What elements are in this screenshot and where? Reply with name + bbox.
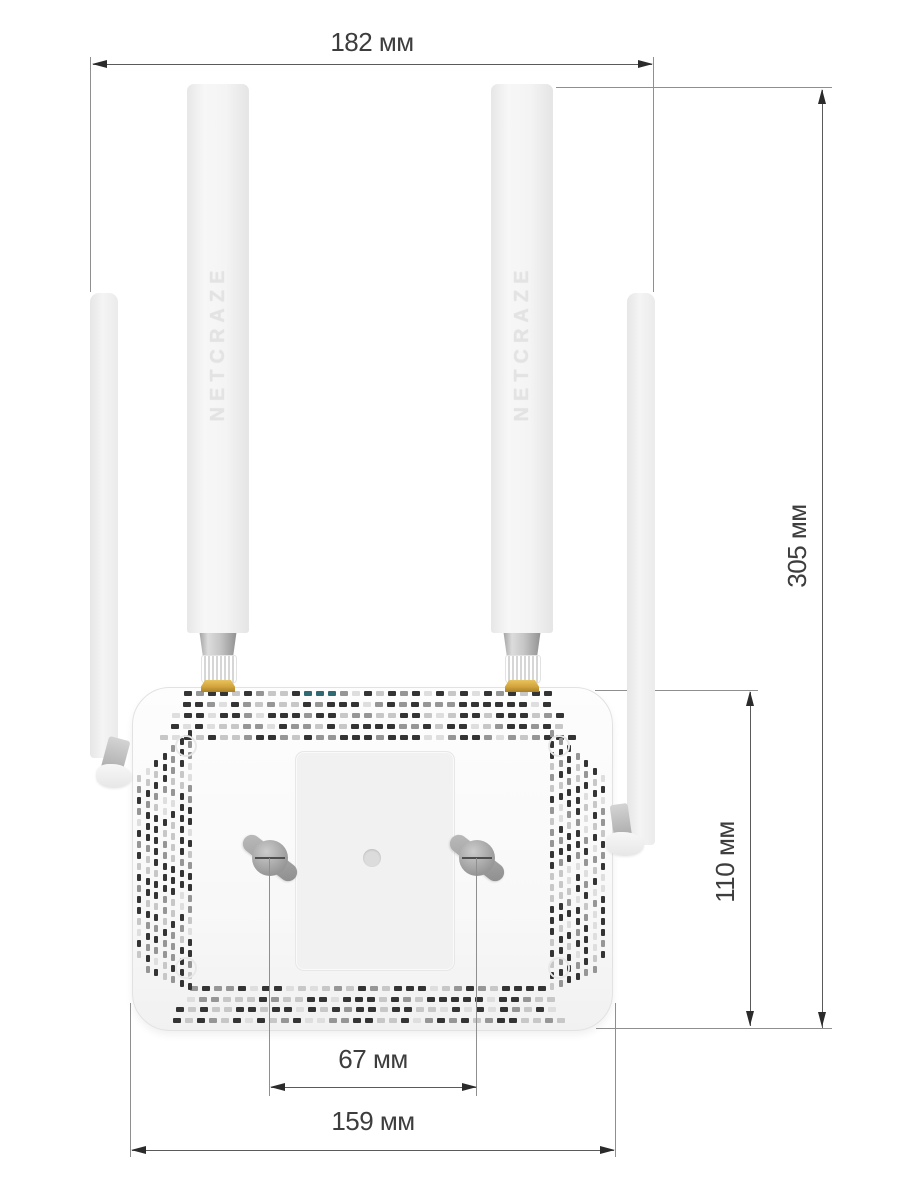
vent-dash [451,997,459,1002]
vent-dash [601,819,605,826]
vent-dash [154,837,158,844]
dim-overall-width-label: 182 мм [287,27,457,57]
vent-dash [305,1018,313,1023]
vent-dash [291,724,299,729]
vent-dash [379,997,387,1002]
vent-dash [508,735,516,740]
vent-dash [146,955,150,962]
vent-dash [146,944,150,951]
vent-dash [327,724,335,729]
vent-dash [224,1007,232,1012]
vent-dash [171,778,175,785]
vent-dash [568,735,576,740]
vent-dash [584,859,588,866]
vent-dash [567,767,571,774]
corner-screw-hole-bottom-left [175,957,197,979]
vent-dash [559,837,563,844]
vent-column [171,745,175,988]
vent-dash [472,713,480,718]
vent-dash [601,929,605,936]
vent-dash [329,1018,337,1023]
vent-dash [576,885,580,892]
vent-dash [584,903,588,910]
vent-dash [343,997,351,1002]
vent-dash [137,863,141,870]
vent-dash [180,848,184,855]
vent-dash [137,841,141,848]
vent-dash [358,986,366,991]
vent-dash [260,1007,268,1012]
vent-dash [428,1007,436,1012]
vent-dash [435,702,443,707]
vent-dash [550,807,554,814]
vent-dash [235,997,243,1002]
vent-dash [584,936,588,943]
vent-dash [310,986,318,991]
vent-dash [576,753,580,760]
vent-dash [209,1018,217,1023]
vent-dash [364,691,372,696]
dim-body-height-arrow-top [746,691,754,706]
vent-dash [188,983,192,990]
vent-dash [146,834,150,841]
vent-dash [180,903,184,910]
vent-dash [567,899,571,906]
vent-dash [202,986,210,991]
vent-dash [188,774,192,781]
vent-dash [550,829,554,836]
vent-dash [250,986,258,991]
vent-column [576,753,580,984]
vent-dash [233,1018,241,1023]
vent-dash [464,1007,472,1012]
vent-dash [425,1018,433,1023]
vent-dash [567,954,571,961]
vent-dash [154,969,158,976]
vent-dash [584,782,588,789]
vent-dash [550,785,554,792]
vent-dash [208,735,216,740]
vent-dash [163,929,167,936]
vent-dash [544,713,552,718]
dim-overall-width-ext-right [653,57,654,292]
vent-dash [180,760,184,767]
vent-dash [171,811,175,818]
vent-row [173,1018,571,1023]
vent-dash [332,1007,340,1012]
vent-dash [584,815,588,822]
vent-dash [146,823,150,830]
vent-dash [567,756,571,763]
vent-dash [496,691,504,696]
vent-dash [274,986,282,991]
front-right-antenna-brand: NETCRAZE [510,223,534,463]
vent-dash [340,713,348,718]
vent-dash [163,797,167,804]
vent-dash [601,918,605,925]
vent-dash [576,929,580,936]
vent-dash [387,724,395,729]
vent-dash [550,873,554,880]
front-left-antenna-brand: NETCRAZE [206,223,230,463]
vent-dash [163,786,167,793]
vent-dash [601,775,605,782]
vent-dash [208,713,216,718]
vent-dash [415,997,423,1002]
vent-dash [284,1007,292,1012]
vent-dash [555,724,563,729]
vent-dash [137,929,141,936]
vent-dash [304,691,312,696]
vent-dash [388,691,396,696]
vent-dash [593,922,597,929]
mount-keyhole-crosshair [462,857,492,859]
front-right-antenna-connector-collar [505,655,541,684]
vent-dash [400,713,408,718]
vent-dash [524,1007,532,1012]
vent-dash [601,907,605,914]
vent-dash [519,724,527,729]
vent-dash [154,848,158,855]
vent-dash [154,914,158,921]
vent-dash [355,997,363,1002]
vent-dash [521,1018,529,1023]
vent-dash [370,986,378,991]
vent-dash [593,900,597,907]
vent-dash [188,785,192,792]
vent-dash [256,691,264,696]
vent-dash [593,867,597,874]
vent-dash [461,1018,469,1023]
vent-dash [146,801,150,808]
vent-dash [567,943,571,950]
vent-dash [171,855,175,862]
vent-dash [188,884,192,891]
vent-dash [154,782,158,789]
vent-dash [188,829,192,836]
vent-dash [339,702,347,707]
vent-dash [576,830,580,837]
mount-keyhole-right [445,826,509,890]
vent-dash [315,724,323,729]
vent-dash [430,986,438,991]
vent-dash [404,1007,412,1012]
vent-dash [163,896,167,903]
vent-dash [550,818,554,825]
vent-dash [244,735,252,740]
vent-dash [207,724,215,729]
vent-dash [472,735,480,740]
vent-dash [259,997,267,1002]
vent-dash [437,1018,445,1023]
vent-dash [520,735,528,740]
dim-body-width-arrow-right [600,1146,615,1154]
vent-dash [180,837,184,844]
vent-dash [532,713,540,718]
vent-row [190,986,550,991]
vent-dash [137,951,141,958]
vent-dash [163,841,167,848]
dim-overall-width-ext-left [90,57,91,292]
dim-body-width-line [132,1150,614,1151]
vent-dash [377,1018,385,1023]
vent-dash [320,1007,328,1012]
vent-dash [550,796,554,803]
vent-dash [163,973,167,980]
rear-left-antenna [90,293,118,758]
vent-dash [523,997,531,1002]
rear-left-antenna-base [96,764,132,788]
vent-dash [368,1007,376,1012]
vent-dash [576,874,580,881]
vent-dash [593,889,597,896]
vent-dash [231,724,239,729]
dim-mount-spacing-line [271,1087,476,1088]
corner-screw-hole-top-left [175,735,197,757]
vent-dash [243,724,251,729]
vent-dash [559,925,563,932]
dim-body-height-label: 110 мм [710,777,740,947]
vent-dash [576,907,580,914]
vent-dash [593,911,597,918]
vent-dash [188,906,192,913]
vent-column [137,775,141,968]
dim-overall-height-ext-top [556,87,832,88]
vent-dash [463,997,471,1002]
vent-dash [567,976,571,983]
vent-dash [344,1007,352,1012]
vent-dash [180,947,184,954]
vent-dash [497,1018,505,1023]
vent-dash [576,841,580,848]
vent-dash [392,1007,400,1012]
vent-dash [448,735,456,740]
vent-dash [248,1007,256,1012]
vent-dash [601,863,605,870]
vent-dash [188,1007,196,1012]
vent-dash [316,691,324,696]
vent-dash [146,779,150,786]
vent-dash [219,724,227,729]
vent-dash [137,852,141,859]
vent-dash [281,1018,289,1023]
vent-dash [340,735,348,740]
vent-dash [442,986,450,991]
vent-dash [584,892,588,899]
vent-dash [268,691,276,696]
vent-dash [171,844,175,851]
vent-dash [283,997,291,1002]
vent-dash [163,951,167,958]
vent-dash [584,826,588,833]
vent-dash [567,844,571,851]
vent-dash [380,1007,388,1012]
vent-dash [576,863,580,870]
vent-dash [550,939,554,946]
vent-dash [601,797,605,804]
vent-dash [214,986,222,991]
vent-dash [576,973,580,980]
vent-dash [188,807,192,814]
vent-dash [584,870,588,877]
vent-dash [146,900,150,907]
vent-dash [519,702,527,707]
vent-dash [185,1018,193,1023]
vent-dash [146,768,150,775]
vent-dash [221,1018,229,1023]
vent-dash [576,962,580,969]
vent-dash [171,954,175,961]
vent-dash [352,735,360,740]
vent-dash [163,940,167,947]
vent-dash [576,764,580,771]
vent-dash [183,702,191,707]
vent-dash [137,775,141,782]
vent-dash [269,1018,277,1023]
vent-dash [280,713,288,718]
vent-dash [559,848,563,855]
vent-dash [188,840,192,847]
vent-dash [478,986,486,991]
vent-dash [328,713,336,718]
dim-overall-height-line [822,90,823,1028]
vent-dash [163,830,167,837]
vent-dash [593,966,597,973]
vent-dash [460,691,468,696]
vent-dash [593,801,597,808]
vent-dash [180,804,184,811]
vent-dash [322,986,330,991]
vent-dash [576,940,580,947]
vent-column [601,775,605,968]
vent-dash [545,1018,553,1023]
vent-dash [593,834,597,841]
vent-dash [601,852,605,859]
vent-dash [567,800,571,807]
vent-dash [171,767,175,774]
vent-dash [163,874,167,881]
vent-dash [137,830,141,837]
vent-dash [488,1007,496,1012]
vent-dash [535,997,543,1002]
vent-dash [567,811,571,818]
vent-dash [364,735,372,740]
vent-dash [593,790,597,797]
vent-dash [514,986,522,991]
vent-dash [601,940,605,947]
vent-dash [559,881,563,888]
vent-dash [171,756,175,763]
vent-dash [154,903,158,910]
vent-dash [292,713,300,718]
vent-dash [172,713,180,718]
vent-dash [154,771,158,778]
vent-dash [567,789,571,796]
vent-dash [507,702,515,707]
vent-dash [567,932,571,939]
vent-dash [576,852,580,859]
vent-dash [412,735,420,740]
vent-dash [188,950,192,957]
vent-dash [495,724,503,729]
vent-dash [593,878,597,885]
vent-dash [548,1007,556,1012]
vent-dash [471,702,479,707]
vent-dash [255,724,263,729]
vent-dash [146,889,150,896]
vent-dash [567,822,571,829]
vent-dash [292,735,300,740]
vent-dash [472,691,480,696]
vent-dash [188,763,192,770]
vent-dash [559,826,563,833]
vent-dash [340,691,348,696]
vent-dash [601,808,605,815]
vent-dash [163,885,167,892]
vent-dash [171,866,175,873]
dim-body-height-line [750,692,751,1026]
vent-dash [304,735,312,740]
dim-body-height-arrow-bottom [746,1011,754,1026]
vent-dash [352,691,360,696]
vent-dash [559,914,563,921]
vent-dash [351,724,359,729]
dim-body-width-ext-right [615,1003,616,1157]
vent-dash [532,735,540,740]
vent-row [187,997,557,1002]
vent-dash [171,899,175,906]
vent-dash [211,997,219,1002]
vent-dash [424,713,432,718]
vent-dash [154,958,158,965]
vent-dash [180,925,184,932]
vent-dash [307,997,315,1002]
vent-dash [394,986,402,991]
vent-dash [171,800,175,807]
vent-dash [584,947,588,954]
vent-dash [137,797,141,804]
vent-dash [137,808,141,815]
vent-dash [550,763,554,770]
vent-dash [257,1018,265,1023]
vent-dash [271,997,279,1002]
vent-dash [163,863,167,870]
vent-dash [550,851,554,858]
vent-dash [146,845,150,852]
vent-dash [584,760,588,767]
vent-row [183,702,562,707]
vent-dash [576,951,580,958]
vent-dash [180,859,184,866]
vent-dash [255,702,263,707]
vent-dash [559,771,563,778]
vent-dash [188,895,192,902]
vent-dash [559,870,563,877]
vent-dash [195,702,203,707]
corner-screw-hole-top-right [548,735,570,757]
vent-dash [146,867,150,874]
vent-dash [411,724,419,729]
vent-dash [593,812,597,819]
vent-dash [559,793,563,800]
vent-dash [601,896,605,903]
vent-dash [490,986,498,991]
vent-dash [171,932,175,939]
vent-dash [460,713,468,718]
vent-dash [184,691,192,696]
vent-dash [171,943,175,950]
vent-dash [512,1007,520,1012]
